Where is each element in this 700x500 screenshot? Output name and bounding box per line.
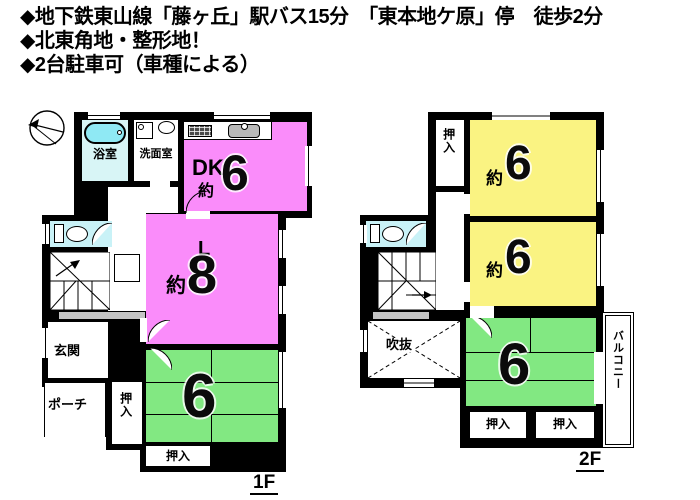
room-size-dk: 6 bbox=[221, 150, 249, 196]
door-gap bbox=[464, 194, 470, 214]
bathtub-drain-icon bbox=[117, 130, 122, 135]
window-marker bbox=[42, 224, 49, 244]
window-marker bbox=[88, 112, 120, 119]
closet-label: 押入 bbox=[119, 392, 132, 418]
room-size-tatami-1f: 6 bbox=[182, 368, 216, 425]
stove-icon bbox=[188, 125, 212, 137]
door-gap bbox=[464, 282, 470, 302]
door-arc bbox=[92, 223, 112, 245]
tatami-line bbox=[466, 352, 596, 353]
door-arc bbox=[148, 320, 170, 342]
header-line-2: ◆北東角地・整形地！ bbox=[20, 29, 210, 53]
window-marker bbox=[597, 234, 604, 286]
window-marker bbox=[279, 352, 286, 408]
room-size-y2: 6 bbox=[505, 236, 532, 280]
window-marker bbox=[279, 286, 286, 314]
room-label-void: 吹抜 bbox=[384, 338, 414, 352]
door-gap bbox=[140, 318, 147, 342]
window-marker bbox=[404, 379, 434, 387]
window-marker bbox=[492, 112, 550, 120]
window-marker bbox=[42, 328, 49, 358]
window-marker bbox=[360, 330, 367, 352]
room-size-living: 8 bbox=[187, 251, 217, 301]
room-size-y1: 6 bbox=[505, 142, 532, 186]
room-label-y2-approx: 約 bbox=[486, 262, 503, 280]
room-label-y1-approx: 約 bbox=[486, 170, 503, 188]
room-label-bath: 浴室 bbox=[84, 148, 126, 161]
header-line-3: ◆2台駐車可（車種による） bbox=[20, 53, 259, 77]
toilet-tank-icon bbox=[370, 224, 380, 243]
door-gap bbox=[150, 181, 170, 188]
closet-label: 押入 bbox=[442, 128, 455, 154]
door-arc bbox=[150, 348, 172, 370]
window-marker bbox=[597, 150, 604, 202]
toilet-bowl-icon bbox=[66, 226, 88, 242]
tatami-line bbox=[466, 380, 596, 381]
hallway-2f bbox=[436, 192, 464, 310]
floor-label-2f: 2F bbox=[576, 450, 604, 472]
room-label-washroom: 洗面室 bbox=[133, 149, 179, 161]
step-strip bbox=[372, 311, 430, 320]
room-yellow-1 bbox=[470, 120, 596, 216]
hallway bbox=[108, 187, 146, 317]
stairs-icon bbox=[378, 252, 436, 310]
washing-machine-dial-icon bbox=[138, 124, 144, 130]
door-arc bbox=[406, 223, 426, 245]
door-arc bbox=[186, 191, 208, 213]
room-label-genkan: 玄関 bbox=[54, 344, 80, 358]
under-stair-closet bbox=[114, 254, 140, 282]
floor-label-1f: 1F bbox=[250, 473, 278, 495]
window-marker bbox=[214, 112, 270, 119]
closet-label: 押入 bbox=[470, 418, 526, 431]
closet-label: 押入 bbox=[146, 450, 210, 463]
room-label-dk: DK bbox=[192, 156, 224, 179]
room-label-balcony: バルコニー bbox=[611, 330, 623, 390]
window-marker bbox=[305, 146, 312, 186]
header-line-1: ◆地下鉄東山線「藤ヶ丘」駅バス15分 「東本地ケ原」停 徒歩2分 bbox=[20, 5, 603, 29]
toilet-bowl-icon bbox=[382, 226, 404, 242]
door-gap bbox=[470, 306, 494, 318]
balcony-door-gap bbox=[594, 352, 604, 404]
window-marker bbox=[360, 225, 367, 243]
faucet-icon bbox=[241, 123, 248, 130]
room-label-porch: ポーチ bbox=[48, 398, 87, 412]
sink-icon bbox=[158, 121, 175, 134]
stairs-icon bbox=[50, 252, 110, 310]
toilet-tank-icon bbox=[54, 224, 64, 243]
room-label-living-approx: 約 bbox=[166, 276, 186, 297]
compass-icon bbox=[26, 107, 66, 149]
floorplan-flyer: ◆地下鉄東山線「藤ヶ丘」駅バス15分 「東本地ケ原」停 徒歩2分 ◆北東角地・整… bbox=[0, 0, 700, 500]
closet-label: 押入 bbox=[536, 418, 594, 431]
step-strip bbox=[58, 311, 146, 320]
door-arc bbox=[470, 316, 492, 338]
window-marker bbox=[279, 230, 286, 258]
room-size-tatami-2f: 6 bbox=[498, 338, 530, 391]
